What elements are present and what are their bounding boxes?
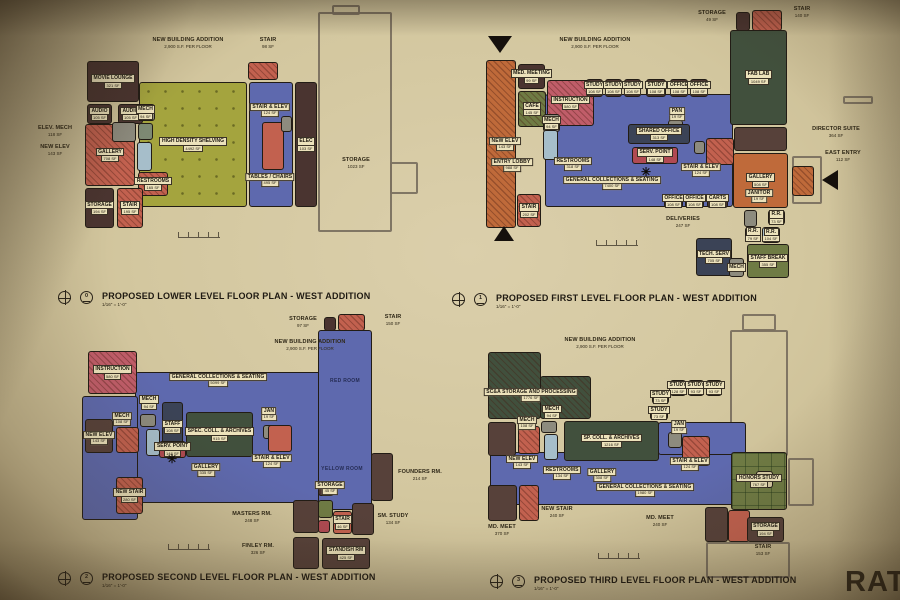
- room: [488, 352, 541, 419]
- label-yellow-room: YELLOW ROOM: [321, 466, 363, 472]
- label-stair: STAIR150 SF: [385, 314, 402, 326]
- label-general-collections-seating: GENERAL COLLECTIONS & SEATING5099 SF: [169, 373, 267, 387]
- label-stair: STAIR98 SF: [260, 37, 277, 49]
- label-entry-lobby: ENTRY LOBBY988 SF: [491, 158, 533, 172]
- label-tables-chairs: TABLES / CHAIRS495 SF: [245, 173, 294, 187]
- label-sm-study: SM. STUDY134 SF: [378, 513, 409, 525]
- room-label: MECH94 SF: [542, 405, 562, 419]
- room-label: INSTRUCTION580 SF: [551, 96, 590, 110]
- room-mech: MECH94 SF: [544, 405, 560, 419]
- asterisk-mark: ✳: [641, 165, 651, 179]
- plan-title-second: PROPOSED SECOND LEVEL FLOOR PLAN - WEST …: [102, 572, 376, 582]
- room-study: STUDY108 SF: [586, 79, 603, 97]
- corner-partial-text: RATI: [845, 566, 900, 599]
- label-md-meet: MD. MEET240 SF: [646, 515, 674, 527]
- label-elev-mech: ELEV. MECH118 SF: [38, 125, 72, 137]
- room-sp-coll-archives: SP. COLL. & ARCHIVES1216 SF: [564, 421, 659, 461]
- plan-scale-note: 1/16" = 1'-0": [102, 583, 376, 588]
- label-new-elev: NEW ELEV143 SF: [40, 144, 70, 156]
- label-mech: MECH108 SF: [517, 416, 537, 430]
- label-stair-elev: STAIR & ELEV124 SF: [681, 163, 721, 177]
- label-gallery: GALLERY335 SF: [191, 463, 220, 477]
- label-restrooms: RESTROOMS318 SF: [554, 157, 592, 171]
- room-label: STUDY73 SF: [648, 406, 670, 420]
- room: [668, 432, 682, 448]
- plan-number-marker: 3: [512, 575, 525, 588]
- label-jan: JAN19 SF: [671, 420, 687, 434]
- label-deliveries: DELIVERIES247 SF: [666, 216, 700, 228]
- room-shared-office: SHARED OFFICE313 SF: [628, 124, 690, 144]
- label-storage: STORAGE45 SF: [315, 481, 345, 495]
- label-new-elev: NEW ELEV143 SF: [83, 431, 115, 445]
- room-label: SERV. POINT148 SF: [637, 148, 673, 162]
- titleblock-first: 1 PROPOSED FIRST LEVEL FLOOR PLAN - WEST…: [452, 293, 757, 309]
- room-study: STUDY108 SF: [605, 79, 622, 97]
- room: [488, 485, 517, 521]
- plan-title-lower: PROPOSED LOWER LEVEL FLOOR PLAN - WEST A…: [102, 291, 370, 301]
- room-label: R.R.104 SF: [762, 228, 780, 242]
- room-serv-point: SERV. POINT148 SF: [632, 147, 678, 164]
- room-label: STORAGE194 SF: [85, 201, 115, 215]
- north-arrow-icon: [58, 572, 71, 585]
- room-label: STANDISH RM425 SF: [326, 546, 365, 560]
- plan-scale-note: 1/16" = 1'-0": [496, 304, 757, 309]
- entry-arrow-down: [488, 36, 512, 53]
- room-study: STUDY73 SF: [650, 406, 668, 420]
- titleblock-lower: 0 PROPOSED LOWER LEVEL FLOOR PLAN - WEST…: [58, 291, 370, 307]
- label-storage: STORAGE49 SF: [698, 10, 726, 22]
- label-restrooms: RESTROOMS134 SF: [543, 466, 581, 480]
- label-masters-rm: MASTERS RM.248 SF: [232, 511, 272, 523]
- label-sc-a-storage-and-processing: SC&A STORAGE AND PROCESSING1776 SF: [484, 388, 578, 402]
- room-office: OFFICE108 SF: [664, 194, 683, 208]
- label-founders-rm: FOUNDERS RM.214 SF: [398, 469, 442, 481]
- label-storage: STORAGE97 SF: [289, 316, 317, 328]
- room-label: STUDY108 SF: [622, 81, 644, 95]
- room-audio: AUDIO105 SF: [87, 104, 112, 124]
- plan-number-marker: 2: [80, 572, 93, 585]
- room: [488, 422, 516, 456]
- label-director-suite: DIRECTOR SUITE364 SF: [812, 126, 860, 138]
- room-study: STUDY93 SF: [706, 380, 722, 396]
- titleblock-second: 2 PROPOSED SECOND LEVEL FLOOR PLAN - WES…: [58, 572, 376, 588]
- label-stair: STAIR153 SF: [755, 544, 772, 556]
- room: [541, 421, 557, 433]
- room-label: MOVIE LOUNGE321 SF: [91, 74, 135, 88]
- label-md-meet: MD. MEET370 SF: [488, 524, 516, 536]
- room-r-r: R.R.73 SF: [768, 210, 785, 225]
- room-label: STAFF BREAK355 SF: [748, 254, 788, 268]
- label-stair-elev: STAIR & ELEV124 SF: [252, 454, 292, 468]
- room-study: STUDY128 SF: [670, 380, 686, 396]
- label-new-elev: NEW ELEV143 SF: [506, 455, 538, 469]
- north-arrow-icon: [490, 575, 503, 588]
- room-label: FAB LAB1049 SF: [745, 70, 772, 84]
- room-label: MECH94 SF: [139, 395, 159, 409]
- room-label: STORAGE194 SF: [751, 522, 781, 536]
- room: [705, 507, 728, 542]
- room-label: RESTROOMS165 SF: [134, 177, 171, 191]
- label-gallery: GALLERY308 SF: [587, 468, 616, 482]
- room-study: STUDY93 SF: [688, 380, 704, 396]
- entry-arrow-left: [822, 170, 838, 190]
- room: [519, 485, 539, 521]
- label-stair-elev: STAIR & ELEV124 SF: [250, 103, 290, 117]
- room-label: STUDY108 SF: [645, 81, 667, 95]
- label-pan: PAN19 SF: [669, 107, 685, 121]
- label-stair: STAIR140 SF: [794, 6, 811, 18]
- room-r-r: R.R.79 SF: [745, 227, 761, 242]
- room-storage: STORAGE194 SF: [747, 517, 784, 542]
- room-label: SPEC. COLL. & ARCHIVES915 SF: [185, 427, 253, 441]
- label-janitor: JANITOR19 SF: [745, 189, 773, 203]
- room-honors-study: HONORS STUDY767 SF: [731, 452, 787, 510]
- room-label: STUDY93 SF: [703, 381, 725, 395]
- label-finley-rm: FINLEY RM.326 SF: [242, 543, 274, 555]
- room-label: MECH: [727, 263, 747, 271]
- room-label: GALLERY508 SF: [746, 173, 775, 187]
- label-new-stair: NEW STAIR240 SF: [541, 506, 572, 518]
- room-label: MECH94 SF: [542, 116, 562, 130]
- label-east-entry: EAST ENTRY112 SF: [825, 150, 861, 162]
- room-carts: CARTS108 SF: [707, 194, 728, 208]
- room-label: NEW STAIR280 SF: [113, 488, 146, 502]
- room-label: INSTRUCTION580 SF: [93, 365, 132, 379]
- plan-number-marker: 1: [474, 293, 487, 306]
- plan-title-first: PROPOSED FIRST LEVEL FLOOR PLAN - WEST A…: [496, 293, 757, 303]
- label-new-building-addition: NEW BUILDING ADDITION2,900 S.F. PER FLOO…: [565, 337, 636, 349]
- label-red-room: RED ROOM: [330, 378, 360, 384]
- room: [544, 434, 558, 460]
- room-label: OFFICE108 SF: [687, 81, 710, 95]
- existing-building-outline: [742, 314, 776, 331]
- room: [518, 426, 540, 454]
- label-new-building-addition: NEW BUILDING ADDITION2,900 S.F. PER FLOO…: [560, 37, 631, 49]
- room-label: R.R.73 SF: [769, 210, 785, 224]
- room-label: SP. COLL. & ARCHIVES1216 SF: [581, 434, 642, 448]
- room-study: STUDY73 SF: [652, 390, 669, 404]
- room-label: AUDIO105 SF: [89, 107, 110, 121]
- label-storage: STORAGE1023 SF: [342, 157, 370, 169]
- room-label: OFFICE108 SF: [683, 194, 706, 208]
- room-label: CARTS108 SF: [706, 194, 728, 208]
- label-mech: MECH108 SF: [112, 412, 132, 426]
- room-label: STAIR46 SF: [333, 515, 353, 529]
- room-label: TECH. SERV705 SF: [697, 250, 732, 264]
- room-office: OFFICE108 SF: [690, 79, 708, 97]
- room-label: OFFICE108 SF: [662, 194, 685, 208]
- room-label: GALLERY708 SF: [96, 148, 125, 162]
- room-label: R.R.79 SF: [745, 227, 761, 241]
- label-new-building-addition: NEW BUILDING ADDITION2,900 S.F. PER FLOO…: [275, 339, 346, 351]
- room-study: STUDY108 SF: [646, 79, 666, 97]
- room-mech: MECH94 SF: [543, 114, 560, 132]
- room-label: HIGH DENSITY SHELVING4492 SF: [159, 137, 226, 151]
- room-label: MED. MEETING99 SF: [511, 69, 553, 83]
- room-label: STUDY73 SF: [650, 390, 672, 404]
- room-office: OFFICE108 SF: [685, 194, 704, 208]
- plan-number-marker: 0: [80, 291, 93, 304]
- north-arrow-icon: [58, 291, 71, 304]
- plan-title-third: PROPOSED THIRD LEVEL FLOOR PLAN - WEST A…: [534, 575, 796, 585]
- plan-scale-note: 1/16" = 1'-0": [102, 302, 370, 307]
- room-label: SHARED OFFICE313 SF: [636, 127, 682, 141]
- room-r-r: R.R.104 SF: [762, 227, 780, 243]
- existing-building-outline: [788, 458, 814, 506]
- room-office: OFFICE108 SF: [670, 79, 688, 97]
- room-mech: MECH94 SF: [141, 395, 157, 410]
- label-general-collections-seating: GENERAL COLLECTIONS & SEATING1980 SF: [596, 483, 694, 497]
- room-label: CAFE145 SF: [523, 102, 542, 116]
- titleblock-third: 3 PROPOSED THIRD LEVEL FLOOR PLAN - WEST…: [490, 575, 796, 591]
- room-label: MECH94 SF: [136, 105, 156, 119]
- graphic-scale: [598, 553, 640, 559]
- label-new-elev: NEW ELEV143 SF: [489, 137, 521, 151]
- room-label: HONORS STUDY767 SF: [736, 474, 781, 488]
- room-mech: MECH94 SF: [136, 104, 155, 121]
- label-jan: JAN19 SF: [261, 407, 277, 421]
- asterisk-mark: ✳: [167, 452, 177, 466]
- room-label: ELEC103 SF: [297, 137, 315, 151]
- label-stair-elev: STAIR & ELEV124 SF: [670, 457, 710, 471]
- room-study: STUDY108 SF: [624, 79, 641, 97]
- room-label: STAFF108 SF: [162, 420, 183, 434]
- entry-arrow-up: [494, 226, 514, 241]
- existing-building-outline: [706, 542, 790, 578]
- north-arrow-icon: [452, 293, 465, 306]
- room-label: STAIR202 SF: [519, 203, 539, 217]
- room-label: STAIR195 SF: [120, 201, 140, 215]
- drawing-sheet: HIGH DENSITY SHELVING4492 SFELEC103 SFMO…: [0, 0, 900, 600]
- plan-scale-note: 1/16" = 1'-0": [534, 586, 796, 591]
- label-new-building-addition: NEW BUILDING ADDITION2,900 S.F. PER FLOO…: [153, 37, 224, 49]
